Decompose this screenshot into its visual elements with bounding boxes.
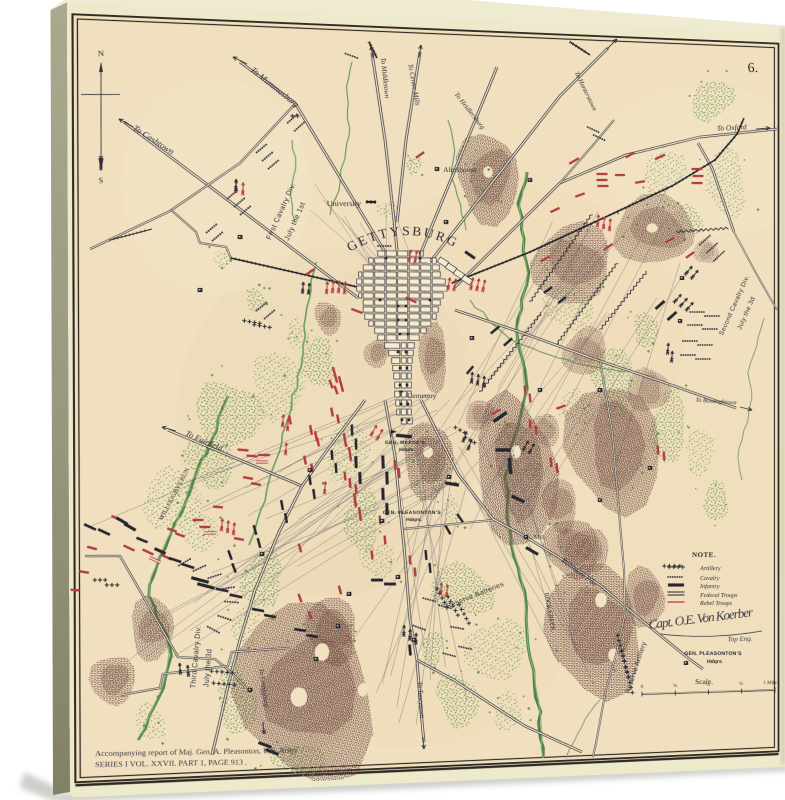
svg-text:University: University bbox=[327, 200, 362, 208]
svg-text:Almshouse: Almshouse bbox=[443, 166, 477, 174]
svg-text:N: N bbox=[98, 49, 105, 58]
svg-text:Mill.: Mill. bbox=[534, 535, 547, 541]
svg-text:Hdqrs.: Hdqrs. bbox=[406, 517, 422, 522]
svg-text:1 Mile: 1 Mile bbox=[763, 681, 777, 686]
svg-text:Cemetery: Cemetery bbox=[407, 392, 436, 400]
svg-text:GEN. MEADE’S: GEN. MEADE’S bbox=[385, 440, 425, 446]
svg-text:Top Eng.: Top Eng. bbox=[728, 634, 753, 643]
svg-text:Cavalry: Cavalry bbox=[700, 576, 721, 582]
svg-text:¾: ¾ bbox=[739, 681, 743, 687]
svg-text:S: S bbox=[98, 176, 103, 185]
svg-text:Artillery: Artillery bbox=[699, 566, 721, 572]
svg-text:To Oxford: To Oxford bbox=[717, 123, 748, 133]
svg-text:Hdqrs.: Hdqrs. bbox=[399, 447, 415, 452]
svg-text:Federal Troops: Federal Troops bbox=[699, 593, 738, 599]
svg-text:6.: 6. bbox=[747, 61, 758, 76]
svg-text:NOTE.: NOTE. bbox=[692, 551, 716, 559]
svg-text:Scale.: Scale. bbox=[695, 678, 713, 686]
svg-text:GEN. PLEASONTON’S: GEN. PLEASONTON’S bbox=[383, 510, 441, 516]
svg-text:GEN. PLEASONTON’S: GEN. PLEASONTON’S bbox=[684, 651, 742, 656]
svg-text:Rebel Troops: Rebel Troops bbox=[699, 601, 732, 607]
svg-text:0: 0 bbox=[641, 684, 644, 689]
svg-text:Hdqrs.: Hdqrs. bbox=[707, 659, 724, 664]
svg-text:Infantry: Infantry bbox=[699, 584, 720, 590]
